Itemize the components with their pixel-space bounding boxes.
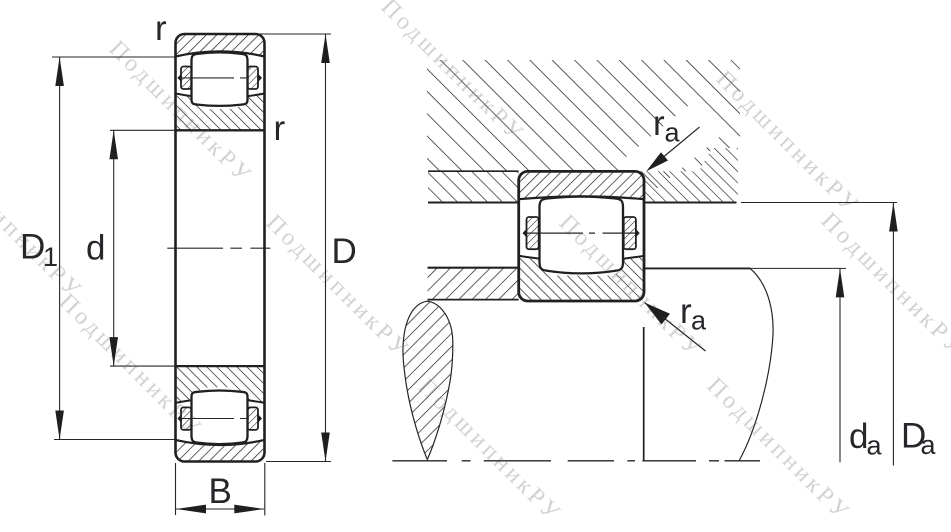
svg-text:a: a xyxy=(921,430,937,460)
svg-text:r: r xyxy=(653,104,665,143)
svg-text:ПодшипникРУ: ПодшипникРУ xyxy=(413,374,567,528)
svg-text:r: r xyxy=(274,109,286,148)
svg-text:a: a xyxy=(665,118,681,148)
svg-text:r: r xyxy=(155,9,167,48)
svg-text:ПодшипникРУ: ПодшипникРУ xyxy=(702,373,856,527)
svg-text:d: d xyxy=(86,228,105,267)
svg-text:ПодшипникРУ: ПодшипникРУ xyxy=(816,208,951,362)
svg-text:B: B xyxy=(209,472,232,511)
svg-text:a: a xyxy=(867,431,883,461)
